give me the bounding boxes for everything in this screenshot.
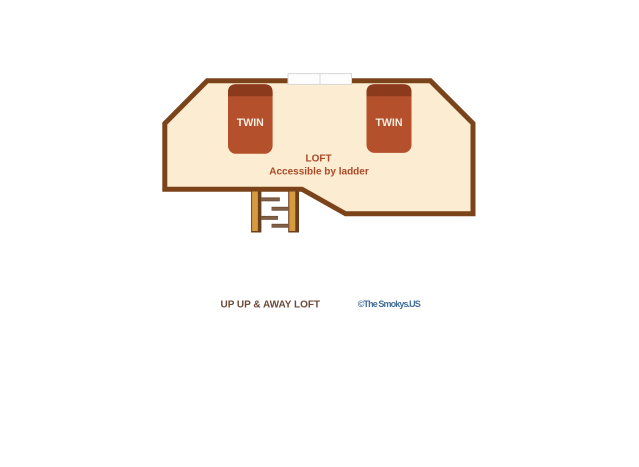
svg-text:Accessible by ladder: Accessible by ladder	[269, 167, 369, 178]
svg-text:©The Smokys.US: ©The Smokys.US	[358, 299, 421, 309]
svg-text:UP UP & AWAY LOFT: UP UP & AWAY LOFT	[221, 300, 321, 311]
svg-text:TWIN: TWIN	[237, 117, 264, 129]
svg-text:TWIN: TWIN	[375, 117, 402, 129]
svg-text:LOFT: LOFT	[306, 153, 332, 164]
